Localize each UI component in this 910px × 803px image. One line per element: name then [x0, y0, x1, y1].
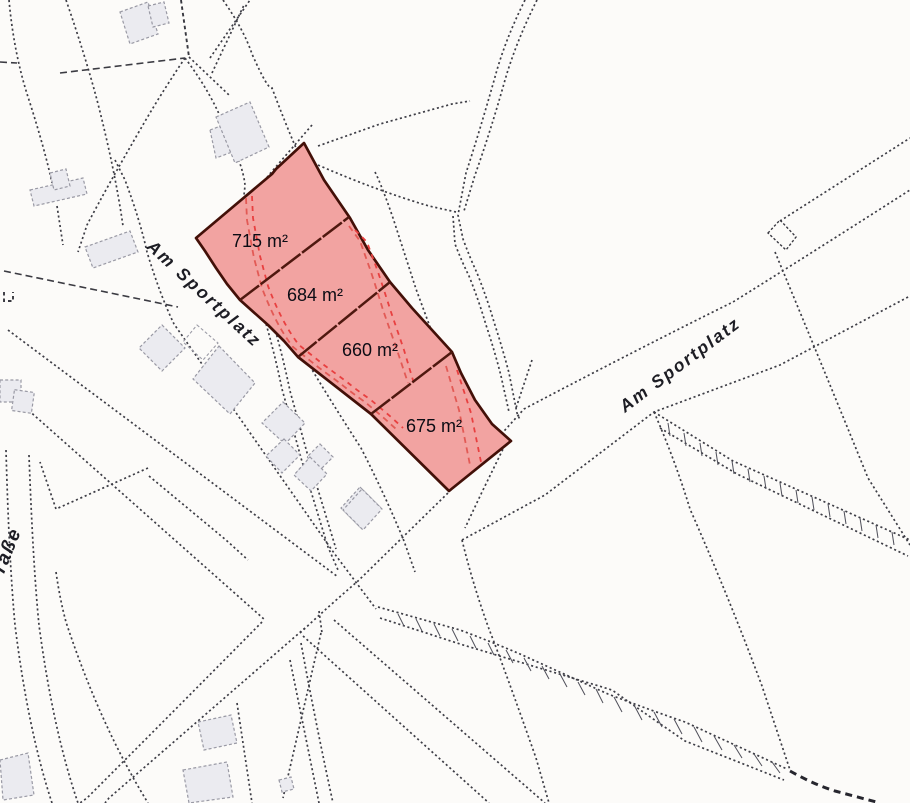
svg-text:684 m²: 684 m² [287, 285, 343, 305]
svg-text:715 m²: 715 m² [232, 231, 288, 251]
svg-text:675 m²: 675 m² [406, 416, 462, 436]
svg-text:660 m²: 660 m² [342, 340, 398, 360]
